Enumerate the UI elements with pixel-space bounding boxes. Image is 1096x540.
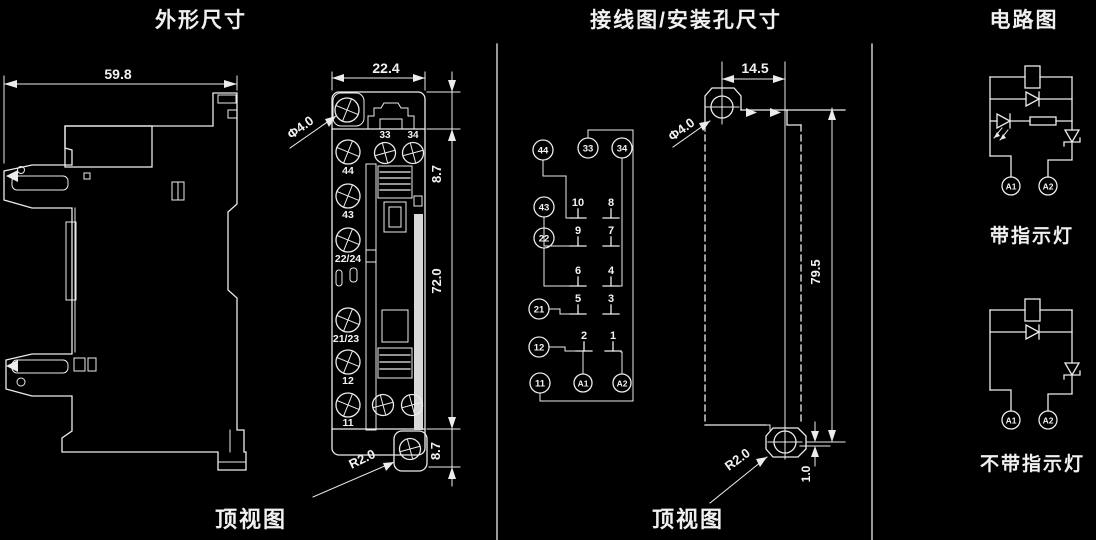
dim-mount-offset: 1.0 — [799, 465, 813, 482]
circuit-without-led: A1 A2 — [990, 299, 1080, 429]
dim-mount-radius: R2.0 — [722, 445, 753, 473]
top-view-label-43: 43 — [342, 209, 354, 221]
circuit1-terminal-a1: A1 — [1006, 182, 1017, 192]
side-view-drawing: 59.8 — [4, 66, 246, 470]
din-clip-lower — [6, 360, 68, 386]
top-view-label-33: 33 — [379, 130, 391, 141]
pin-7: 7 — [608, 225, 614, 237]
dim-mount-pitch-x: 14.5 — [741, 60, 768, 76]
wiring-term-21: 21 — [534, 305, 545, 316]
technical-drawing-sheet: 外形尺寸 接线图/安装孔尺寸 电路图 顶视图 顶视图 带指示灯 不带指示灯 — [0, 0, 1096, 540]
mounting-hole-drawing: 14.5 79.5 1.0 Φ4.0 R2.0 — [665, 60, 845, 503]
dim-top-hole: Φ4.0 — [284, 113, 316, 142]
dim-mount-pitch-y: 79.5 — [808, 259, 823, 284]
wiring-term-12: 12 — [534, 343, 545, 354]
pin-9: 9 — [575, 225, 581, 237]
pin-3: 3 — [608, 293, 614, 305]
dim-mount-hole: Φ4.0 — [665, 115, 697, 144]
top-view-drawing: 33 34 44 43 22/24 21/23 12 11 22.4 — [284, 60, 460, 497]
top-view-label-22-24: 22/24 — [335, 253, 361, 265]
top-view-label-11: 11 — [342, 417, 353, 429]
pin-8: 8 — [608, 197, 614, 209]
top-view-label-21-23: 21/23 — [333, 333, 359, 345]
wiring-term-34: 34 — [617, 144, 628, 155]
dim-top-width: 22.4 — [372, 60, 399, 76]
pin-4: 4 — [608, 265, 615, 277]
pin-2: 2 — [581, 330, 587, 342]
top-view-label-34: 34 — [407, 130, 419, 141]
top-view-label-44: 44 — [342, 165, 354, 177]
dim-top-87: 8.7 — [429, 165, 444, 183]
wiring-diagram: 44 33 34 43 22 21 12 11 A1 A2 10 8 9 7 6… — [529, 130, 633, 401]
circuit-with-led: A1 A2 — [990, 66, 1080, 195]
circuit2-terminal-a1: A1 — [1006, 416, 1017, 426]
circuit1-terminal-a2: A2 — [1043, 182, 1054, 192]
dim-top-radius: R2.0 — [346, 446, 377, 472]
drawing-layer: 59.8 — [0, 0, 1096, 540]
dim-bottom-87: 8.7 — [428, 442, 443, 460]
wiring-term-44: 44 — [538, 146, 549, 157]
pin-5: 5 — [575, 293, 581, 305]
top-view-label-12: 12 — [342, 375, 354, 387]
wiring-term-43: 43 — [539, 203, 550, 214]
wiring-term-11: 11 — [535, 379, 546, 390]
pin-10: 10 — [572, 197, 584, 209]
pin-1: 1 — [610, 330, 616, 342]
wiring-term-a2: A2 — [617, 379, 628, 389]
dim-side-width: 59.8 — [104, 66, 131, 82]
circuit2-terminal-a2: A2 — [1043, 416, 1054, 426]
dim-top-72: 72.0 — [429, 268, 444, 293]
pin-6: 6 — [575, 265, 581, 277]
wiring-term-a1: A1 — [578, 379, 589, 389]
wiring-term-33: 33 — [583, 144, 594, 155]
din-clip-upper — [6, 167, 68, 191]
